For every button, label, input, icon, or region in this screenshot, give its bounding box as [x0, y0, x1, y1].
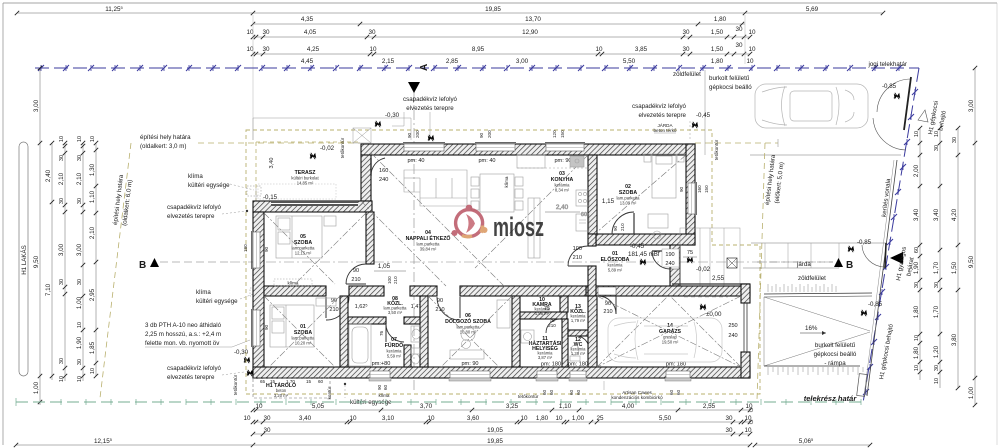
svg-text:10: 10 — [77, 322, 83, 328]
svg-text:5,50: 5,50 — [623, 58, 636, 65]
svg-text:3,85: 3,85 — [635, 46, 648, 53]
svg-text:3,80: 3,80 — [951, 333, 958, 346]
svg-text:240: 240 — [728, 333, 737, 339]
svg-text:1,05: 1,05 — [378, 263, 391, 270]
svg-text:burkolt felületű: burkolt felületű — [815, 342, 856, 349]
svg-text:90: 90 — [377, 384, 382, 390]
svg-text:10: 10 — [914, 335, 920, 341]
svg-text:90: 90 — [264, 246, 269, 252]
svg-text:60: 60 — [542, 389, 547, 395]
svg-text:2,40: 2,40 — [45, 169, 52, 182]
svg-text:-0,45: -0,45 — [630, 243, 645, 250]
svg-text:90: 90 — [605, 301, 611, 307]
svg-text:30: 30 — [59, 358, 65, 364]
svg-text:3,20 m²: 3,20 m² — [274, 393, 289, 398]
svg-text:5,89 m²: 5,89 m² — [608, 268, 623, 273]
svg-text:1,20 m²: 1,20 m² — [571, 351, 586, 356]
svg-text:10: 10 — [90, 136, 96, 142]
svg-text:210: 210 — [573, 255, 582, 261]
svg-text:1,80: 1,80 — [714, 16, 727, 23]
svg-text:30: 30 — [914, 282, 920, 288]
svg-text:15: 15 — [306, 379, 312, 384]
svg-text:csapadékvíz lefolyó: csapadékvíz lefolyó — [632, 103, 687, 110]
svg-text:250: 250 — [728, 323, 737, 329]
svg-text:telekrész határ: telekrész határ — [804, 394, 858, 403]
svg-text:160: 160 — [697, 185, 702, 193]
svg-text:10: 10 — [255, 403, 263, 410]
svg-text:8,34 m²: 8,34 m² — [555, 188, 570, 193]
svg-text:9,50: 9,50 — [33, 255, 40, 268]
svg-text:B: B — [846, 260, 853, 271]
svg-text:30: 30 — [934, 365, 940, 371]
svg-text:25: 25 — [596, 415, 604, 422]
svg-text:1,70: 1,70 — [286, 379, 295, 384]
svg-text:4,00: 4,00 — [622, 403, 635, 410]
svg-text:30: 30 — [59, 279, 65, 285]
svg-text:elvezetés terepre: elvezetés terepre — [167, 374, 215, 381]
svg-text:30: 30 — [682, 46, 690, 53]
svg-text:10: 10 — [746, 58, 754, 65]
svg-text:1,50: 1,50 — [711, 29, 724, 36]
svg-text:90: 90 — [613, 225, 618, 231]
svg-text:19,85: 19,85 — [487, 438, 503, 445]
svg-text:10: 10 — [520, 415, 528, 422]
svg-text:1,30: 1,30 — [89, 163, 96, 176]
svg-text:19,85: 19,85 — [485, 6, 501, 13]
svg-text:4,25: 4,25 — [307, 46, 320, 53]
svg-text:3,00: 3,00 — [968, 99, 975, 112]
svg-text:3,00: 3,00 — [58, 243, 65, 256]
svg-text:1,10: 1,10 — [89, 190, 96, 203]
svg-text:10: 10 — [369, 46, 377, 53]
svg-text:180: 180 — [243, 244, 248, 252]
svg-text:19,05: 19,05 — [487, 427, 503, 434]
svg-text:90: 90 — [479, 132, 484, 138]
svg-text:10: 10 — [90, 368, 96, 374]
svg-text:pm: 40: pm: 40 — [478, 158, 495, 164]
svg-text:8,95: 8,95 — [472, 46, 485, 53]
svg-text:10,20 m²: 10,20 m² — [295, 341, 312, 346]
svg-text:90: 90 — [437, 298, 443, 304]
svg-text:pm: 90: pm: 90 — [554, 158, 571, 164]
svg-text:kültéri egysége: kültéri egysége — [188, 182, 230, 189]
svg-text:10: 10 — [914, 131, 920, 137]
svg-text:30: 30 — [934, 145, 940, 151]
svg-text:5,50: 5,50 — [659, 415, 672, 422]
svg-text:30: 30 — [59, 155, 65, 161]
svg-text:10: 10 — [77, 136, 83, 142]
svg-text:1,80: 1,80 — [536, 415, 549, 422]
svg-text:10: 10 — [744, 427, 752, 434]
svg-text:felette mon. vb. nyomott öv: felette mon. vb. nyomott öv — [145, 340, 220, 347]
svg-text:tetőkontúr: tetőkontúr — [340, 137, 345, 158]
svg-text:tetőkontúr: tetőkontúr — [714, 139, 719, 160]
svg-text:15: 15 — [270, 379, 276, 384]
svg-text:10: 10 — [748, 46, 756, 53]
svg-text:3,87 m²: 3,87 m² — [538, 355, 553, 360]
svg-text:3,50 m²: 3,50 m² — [388, 310, 403, 315]
svg-text:90: 90 — [679, 186, 684, 192]
svg-text:60: 60 — [581, 212, 587, 218]
svg-text:4,35: 4,35 — [301, 16, 314, 23]
svg-text:10: 10 — [427, 415, 435, 422]
svg-text:10: 10 — [349, 415, 357, 422]
svg-text:gépkocsi beálló: gépkocsi beálló — [709, 84, 752, 91]
svg-text:30: 30 — [725, 427, 733, 434]
svg-text:240: 240 — [379, 177, 388, 183]
svg-text:építési hely határa: építési hely határa — [140, 134, 191, 141]
svg-text:30: 30 — [262, 46, 270, 53]
svg-text:65: 65 — [260, 379, 266, 384]
svg-text:19,50 m²: 19,50 m² — [662, 340, 679, 345]
svg-text:90: 90 — [407, 132, 412, 138]
svg-text:190: 190 — [665, 252, 674, 258]
svg-text:1,70: 1,70 — [933, 261, 940, 274]
svg-text:60: 60 — [914, 247, 920, 253]
svg-text:1,80: 1,80 — [913, 346, 920, 359]
svg-text:60: 60 — [569, 389, 574, 395]
svg-text:14,85 m²: 14,85 m² — [297, 181, 314, 186]
svg-text:3,40: 3,40 — [269, 158, 275, 169]
svg-text:tetőkontúr: tetőkontúr — [518, 394, 539, 399]
svg-text:pm: 180: pm: 180 — [541, 362, 561, 368]
svg-text:1,85: 1,85 — [89, 341, 96, 354]
svg-text:7,10: 7,10 — [45, 283, 52, 296]
svg-text:13,09 m²: 13,09 m² — [620, 201, 637, 206]
svg-text:beton térkő: beton térkő — [654, 128, 677, 133]
svg-text:10: 10 — [243, 415, 251, 422]
svg-text:76: 76 — [379, 330, 384, 336]
svg-text:3,00: 3,00 — [33, 99, 40, 112]
svg-text:210: 210 — [603, 309, 612, 315]
svg-text:kültéri egysége: kültéri egysége — [196, 298, 238, 305]
svg-text:210: 210 — [548, 323, 556, 328]
svg-text:2,55: 2,55 — [703, 403, 716, 410]
svg-text:30: 30 — [77, 279, 83, 285]
svg-text:pm: 180: pm: 180 — [666, 362, 686, 368]
svg-text:klíma: klíma — [504, 176, 509, 187]
svg-text:kondenzációs kombicirkó: kondenzációs kombicirkó — [611, 395, 663, 400]
svg-text:1,10: 1,10 — [559, 403, 572, 410]
svg-text:1,00: 1,00 — [572, 415, 585, 422]
svg-text:gépkocsi beálló: gépkocsi beálló — [814, 351, 857, 358]
svg-text:1,00: 1,00 — [968, 386, 975, 399]
svg-text:210: 210 — [351, 277, 360, 283]
svg-text:1,20: 1,20 — [933, 345, 940, 358]
svg-text:B: B — [139, 260, 146, 271]
svg-text:181,45 mBf: 181,45 mBf — [628, 251, 660, 258]
svg-text:60: 60 — [318, 379, 324, 384]
svg-text:miosz: miosz — [493, 212, 544, 242]
svg-text:120: 120 — [552, 130, 557, 138]
svg-text:3,10: 3,10 — [382, 415, 395, 422]
svg-text:10: 10 — [914, 365, 920, 371]
svg-text:12,15 m²: 12,15 m² — [295, 251, 312, 256]
svg-text:30: 30 — [59, 198, 65, 204]
svg-text:elvezetés terepre: elvezetés terepre — [167, 213, 215, 220]
svg-text:-0,02: -0,02 — [320, 145, 335, 152]
svg-text:2,25 m hosszú, a.s.: +2,4 m: 2,25 m hosszú, a.s.: +2,4 m — [145, 331, 221, 338]
svg-text:zöldfelület: zöldfelület — [673, 71, 701, 78]
svg-text:30: 30 — [735, 42, 743, 49]
svg-text:210: 210 — [393, 276, 398, 284]
svg-text:1,50: 1,50 — [711, 46, 724, 53]
svg-text:10: 10 — [59, 136, 65, 142]
svg-text:elvezetés terepre: elvezetés terepre — [406, 105, 454, 112]
svg-text:pm: 180: pm: 180 — [568, 362, 588, 368]
svg-text:200: 200 — [415, 130, 420, 138]
svg-text:1,90: 1,90 — [76, 336, 83, 349]
svg-text:3,00: 3,00 — [516, 58, 529, 65]
svg-text:csapadékvíz lefolyó: csapadékvíz lefolyó — [403, 96, 458, 103]
svg-text:60: 60 — [676, 389, 681, 395]
svg-text:1,90: 1,90 — [913, 261, 920, 274]
svg-text:3,60: 3,60 — [467, 415, 480, 422]
svg-text:3,25: 3,25 — [506, 403, 519, 410]
svg-text:burkolt felületű: burkolt felületű — [709, 75, 750, 82]
svg-text:1,80: 1,80 — [913, 305, 920, 318]
svg-text:30: 30 — [735, 26, 743, 33]
svg-text:30: 30 — [263, 415, 271, 422]
svg-text:2,10: 2,10 — [76, 172, 83, 185]
svg-text:1,00: 1,00 — [33, 381, 40, 394]
svg-text:5,59 m²: 5,59 m² — [387, 354, 402, 359]
svg-text:-0,85: -0,85 — [857, 239, 872, 246]
svg-text:(oldalkert: 3,0 m): (oldalkert: 3,0 m) — [140, 143, 186, 150]
svg-text:1,00: 1,00 — [76, 296, 83, 309]
svg-text:150: 150 — [704, 185, 709, 193]
svg-text:10: 10 — [934, 131, 940, 137]
svg-text:klíma: klíma — [188, 173, 203, 180]
svg-text:zöldfelület: zöldfelület — [798, 275, 826, 282]
svg-text:30: 30 — [952, 137, 958, 143]
svg-text:12,90: 12,90 — [522, 29, 538, 36]
svg-text:2,85: 2,85 — [446, 58, 459, 65]
svg-text:2,10: 2,10 — [58, 172, 65, 185]
svg-text:klíma: klíma — [288, 281, 299, 286]
svg-text:39,84 m²: 39,84 m² — [420, 247, 437, 252]
svg-text:3 db PTH A-10 neo áthidaló: 3 db PTH A-10 neo áthidaló — [145, 322, 222, 329]
svg-text:3,40: 3,40 — [913, 208, 920, 221]
svg-text:1,79 m²: 1,79 m² — [571, 318, 586, 323]
svg-text:10: 10 — [595, 46, 603, 53]
svg-text:13,70: 13,70 — [525, 16, 541, 23]
svg-text:-0,30: -0,30 — [234, 349, 249, 356]
svg-text:3,40: 3,40 — [933, 208, 940, 221]
svg-text:200: 200 — [487, 130, 492, 138]
svg-text:A: A — [419, 64, 430, 71]
svg-text:30: 30 — [263, 427, 271, 434]
svg-text:60: 60 — [669, 389, 674, 395]
svg-text:4,45: 4,45 — [301, 58, 314, 65]
svg-text:30: 30 — [77, 359, 83, 365]
svg-text:60: 60 — [576, 389, 581, 395]
svg-text:10: 10 — [555, 415, 563, 422]
svg-text:tetőkontúr: tetőkontúr — [233, 374, 238, 395]
svg-text:10: 10 — [59, 376, 65, 382]
svg-text:10: 10 — [744, 415, 752, 422]
svg-text:60: 60 — [549, 389, 554, 395]
svg-text:-0,85: -0,85 — [868, 301, 883, 308]
svg-text:klíma: klíma — [379, 393, 390, 398]
svg-text:10: 10 — [77, 376, 83, 382]
svg-text:210: 210 — [620, 223, 625, 231]
svg-text:210: 210 — [329, 307, 338, 313]
svg-text:csapadékvíz lefolyó: csapadékvíz lefolyó — [167, 204, 222, 211]
svg-text:9,50: 9,50 — [968, 255, 975, 268]
svg-text:60: 60 — [383, 384, 388, 390]
svg-text:pm: 40: pm: 40 — [407, 158, 424, 164]
svg-text:- rámpa: - rámpa — [824, 360, 846, 367]
svg-text:90: 90 — [353, 268, 359, 274]
svg-text:2,00: 2,00 — [913, 164, 920, 177]
svg-text:1,80: 1,80 — [711, 58, 724, 65]
svg-text:30: 30 — [262, 29, 270, 36]
svg-text:2,55: 2,55 — [712, 275, 725, 282]
svg-text:30: 30 — [934, 282, 940, 288]
svg-text:100: 100 — [387, 276, 392, 284]
svg-text:5,69: 5,69 — [806, 6, 819, 13]
svg-text:elvezetés terepre: elvezetés terepre — [639, 112, 687, 119]
svg-text:-0,85: -0,85 — [882, 83, 897, 90]
svg-text:1,70: 1,70 — [933, 305, 940, 318]
svg-text:2,15: 2,15 — [382, 58, 395, 65]
svg-text:3,40: 3,40 — [299, 415, 312, 422]
svg-text:kontúr: kontúr — [327, 386, 332, 399]
svg-text:3,00: 3,00 — [76, 243, 83, 256]
svg-text:csapadékvíz lefolyó: csapadékvíz lefolyó — [167, 365, 222, 372]
svg-text:240: 240 — [665, 261, 674, 267]
svg-text:30: 30 — [368, 29, 376, 36]
svg-text:30: 30 — [77, 198, 83, 204]
svg-text:16%: 16% — [805, 325, 818, 332]
svg-text:2,95: 2,95 — [89, 288, 96, 301]
svg-text:100: 100 — [573, 246, 582, 252]
svg-text:H1 LAKÁS: H1 LAKÁS — [21, 245, 28, 275]
svg-text:klíma: klíma — [196, 289, 211, 296]
svg-text:30: 30 — [682, 29, 690, 36]
svg-text:1,50: 1,50 — [951, 261, 958, 274]
svg-text:150: 150 — [560, 130, 565, 138]
svg-text:-0,15: -0,15 — [263, 194, 278, 201]
svg-text:-0,45: -0,45 — [696, 112, 711, 119]
svg-text:5,05: 5,05 — [312, 403, 325, 410]
svg-text:30: 30 — [725, 415, 733, 422]
svg-text:10: 10 — [934, 378, 940, 384]
svg-text:pm:+80: pm:+80 — [372, 361, 391, 367]
svg-text:2,10: 2,10 — [89, 226, 96, 239]
svg-text:2,40: 2,40 — [556, 204, 569, 211]
svg-text:jogi telekhatár: jogi telekhatár — [867, 61, 907, 68]
svg-text:30: 30 — [77, 155, 83, 161]
svg-text:1,96 m²: 1,96 m² — [535, 311, 550, 316]
svg-text:75: 75 — [687, 250, 693, 256]
svg-text:járda: járda — [796, 261, 811, 268]
svg-text:pm: 90: pm: 90 — [461, 361, 478, 367]
svg-text:90: 90 — [264, 324, 269, 330]
svg-text:4,20: 4,20 — [951, 208, 958, 221]
svg-text:-0,02: -0,02 — [696, 266, 711, 273]
svg-text:10: 10 — [748, 29, 756, 36]
svg-text:1,15: 1,15 — [602, 198, 615, 205]
svg-text:3,70: 3,70 — [420, 403, 433, 410]
svg-text:4,05: 4,05 — [304, 29, 317, 36]
